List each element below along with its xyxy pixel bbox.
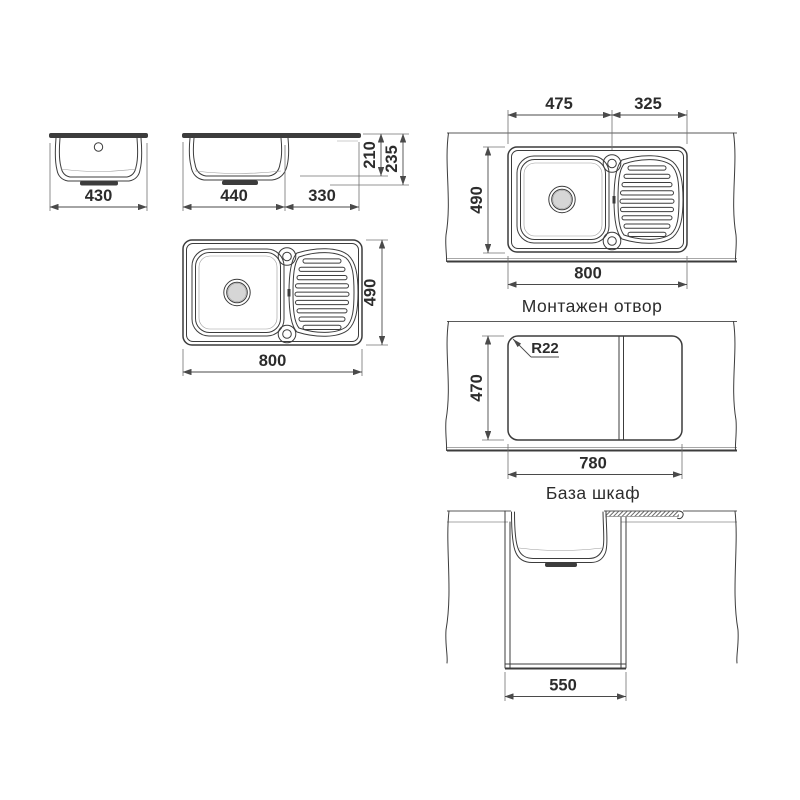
dim-mount-width: 490 bbox=[468, 186, 486, 214]
dim-plan-length: 800 bbox=[259, 352, 287, 370]
plan-view: 800 490 bbox=[183, 240, 388, 376]
dim-mount-rest: 325 bbox=[634, 95, 662, 113]
mount-dims: 475 325 490 800 bbox=[468, 95, 687, 289]
cabinet-view: 550 bbox=[446, 511, 738, 701]
break-line-right bbox=[734, 133, 737, 262]
dim-cutout-width: 470 bbox=[468, 374, 486, 402]
section-drain-foot bbox=[545, 563, 577, 568]
cutout-dims: 470 780 bbox=[468, 336, 682, 479]
sink-technical-drawing: 430 440 330 210 235 bbox=[0, 0, 800, 800]
mount-view: 475 325 490 800 Монтажен отвор bbox=[446, 95, 737, 316]
break-line-left bbox=[446, 511, 449, 663]
section-bowl bbox=[512, 512, 607, 567]
dim-side-height: 235 bbox=[383, 145, 401, 173]
overflow-hole bbox=[94, 143, 102, 151]
cabinet-dims: 550 bbox=[505, 672, 626, 701]
front-drain-foot bbox=[80, 181, 118, 186]
worktop-band bbox=[446, 133, 737, 262]
front-view: 430 bbox=[49, 133, 148, 211]
side-drain-foot bbox=[222, 181, 258, 186]
dim-mount-length: 800 bbox=[574, 265, 602, 283]
radius-callout: R22 bbox=[513, 339, 559, 357]
break-line-right bbox=[735, 511, 738, 663]
break-line-left bbox=[446, 133, 449, 262]
dim-cutout-length: 780 bbox=[579, 455, 607, 473]
cutout-view: R22 470 780 База шкаф bbox=[446, 322, 737, 504]
dim-mount-bowl-center: 475 bbox=[545, 95, 573, 113]
mounted-sink bbox=[508, 147, 687, 252]
dim-cutout-radius: R22 bbox=[531, 340, 559, 357]
break-line-left bbox=[446, 322, 449, 451]
side-dims: 440 330 210 235 bbox=[183, 134, 409, 211]
side-rim bbox=[182, 133, 361, 138]
cutout-view-caption: База шкаф bbox=[546, 483, 640, 503]
mount-view-caption: Монтажен отвор bbox=[522, 296, 663, 316]
dim-side-board: 330 bbox=[308, 187, 336, 205]
worktop-section bbox=[446, 511, 738, 663]
worktop-band-2 bbox=[446, 322, 737, 451]
side-view: 440 330 210 235 bbox=[182, 133, 409, 211]
technical-drawing-sheet: 430 440 330 210 235 bbox=[0, 0, 800, 800]
cabinet-box bbox=[505, 511, 626, 669]
plan-sink bbox=[183, 240, 362, 345]
dim-plan-width: 490 bbox=[362, 279, 380, 307]
front-rim bbox=[49, 133, 148, 138]
dim-side-depth: 210 bbox=[361, 141, 379, 169]
dim-cabinet-width: 550 bbox=[549, 677, 577, 695]
dim-front-width: 430 bbox=[85, 187, 113, 205]
break-line-right bbox=[734, 322, 737, 451]
section-drainboard-lip bbox=[604, 511, 683, 519]
dim-side-bowl: 440 bbox=[220, 187, 248, 205]
